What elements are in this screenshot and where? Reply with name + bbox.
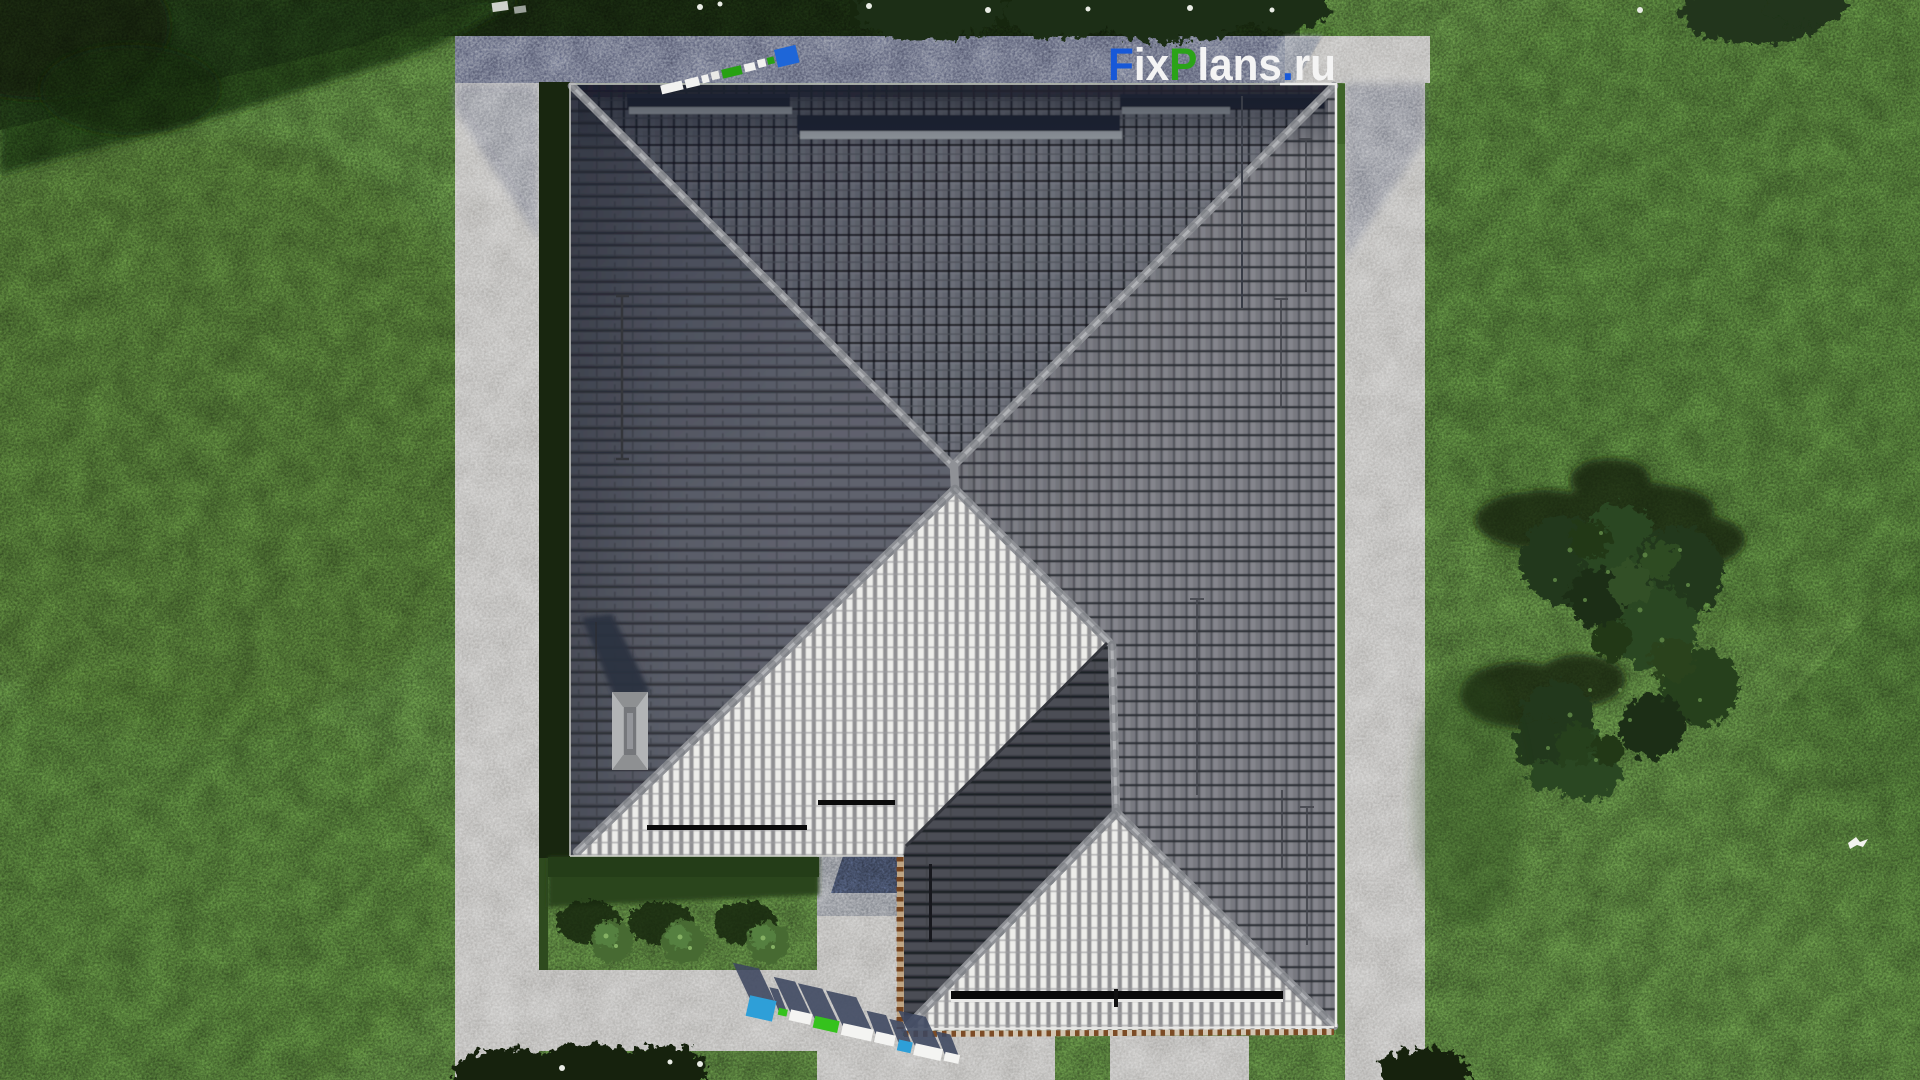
svg-text:FixPlans.ru: FixPlans.ru (1108, 39, 1336, 90)
